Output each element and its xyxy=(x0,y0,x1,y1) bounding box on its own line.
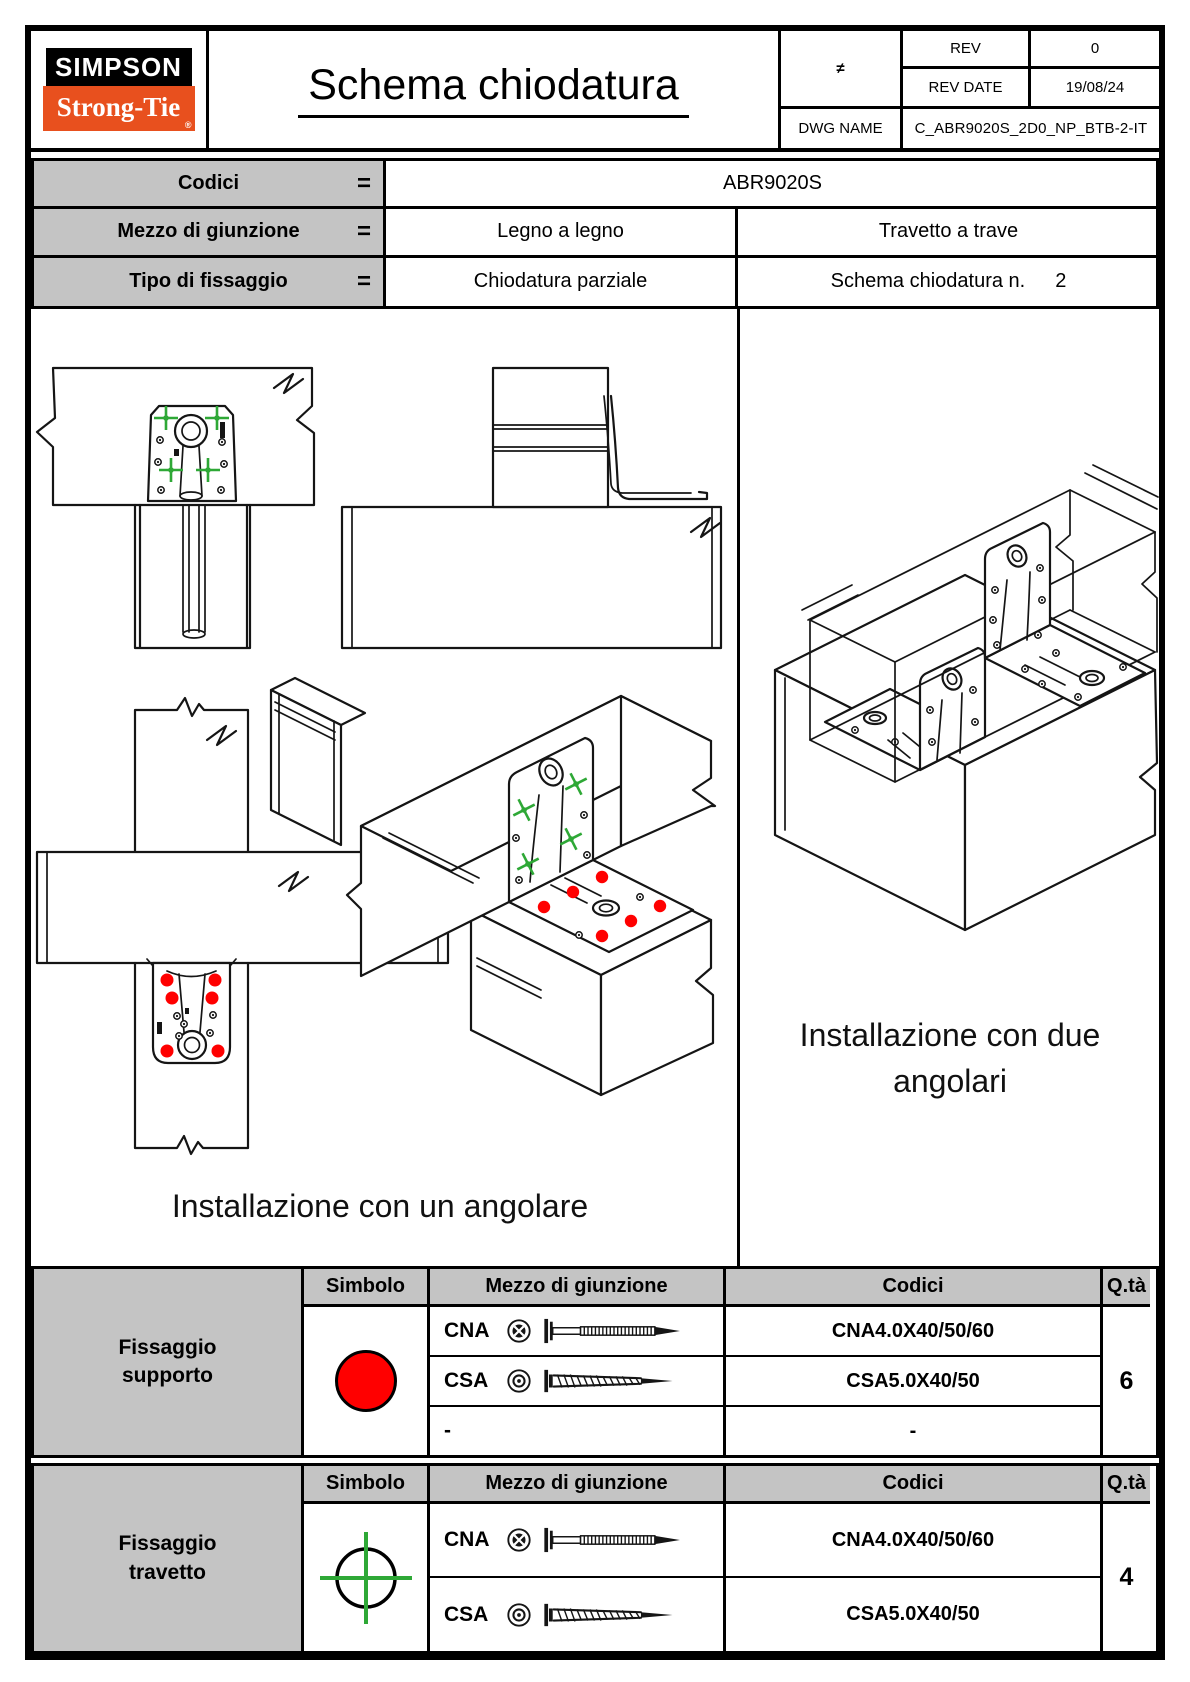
equals-sign: = xyxy=(357,268,371,296)
code-cna: CNA4.0X40/50/60 xyxy=(726,1307,1103,1357)
schema-label: Schema chiodatura n. xyxy=(831,270,1026,293)
dwg-name-value: C_ABR9020S_2D0_NP_BTB-2-IT xyxy=(903,109,1159,148)
revision-block: ≠ REV 0 REV DATE 19/08/24 DWG NAME C_ABR… xyxy=(781,31,1159,148)
fastener-row-csa: CSA xyxy=(430,1357,726,1407)
col-header-simbolo: Simbolo xyxy=(304,1269,430,1307)
info-value-mezzo-left: Legno a legno xyxy=(386,209,738,257)
support-fixing-symbol-red-circle xyxy=(304,1307,430,1455)
col-header-mezzo: Mezzo di giunzione xyxy=(430,1269,726,1307)
rev-date-label: REV DATE xyxy=(903,69,1031,109)
info-value-codici: ABR9020S xyxy=(386,161,1159,209)
cna-head-icon xyxy=(506,1318,532,1344)
brand-logo: SIMPSON Strong-Tie® xyxy=(31,31,209,148)
code-cna: CNA4.0X40/50/60 xyxy=(726,1504,1103,1578)
col-header-qta: Q.tà xyxy=(1103,1269,1150,1307)
info-value-schema: Schema chiodatura n. 2 xyxy=(738,258,1159,306)
support-qty: 6 xyxy=(1103,1307,1150,1455)
rev-label: REV xyxy=(903,31,1031,69)
fastener-row-empty: - xyxy=(430,1407,726,1455)
page-title: Schema chiodatura xyxy=(298,61,689,118)
equals-sign: = xyxy=(357,170,371,198)
sheet-title-cell: Schema chiodatura xyxy=(209,31,781,148)
col-header-qta: Q.tà xyxy=(1103,1466,1150,1504)
csa-head-icon xyxy=(506,1368,532,1394)
col-header-codici: Codici xyxy=(726,1466,1103,1504)
schema-number: 2 xyxy=(1055,270,1066,293)
double-bracket-drawing xyxy=(740,310,1159,1010)
joist-fixing-symbol-green-crosshair xyxy=(304,1504,430,1651)
group-label-supporto: Fissaggio supporto xyxy=(34,1269,304,1455)
right-panel-caption: Installazione con due angolari xyxy=(750,1012,1150,1105)
joist-fixing-table: Fissaggio travetto Simbolo Mezzo di giun… xyxy=(31,1463,1159,1654)
front-view-drawing xyxy=(37,368,314,648)
right-caption-line2: angolari xyxy=(750,1058,1150,1104)
col-header-simbolo: Simbolo xyxy=(304,1466,430,1504)
col-header-mezzo: Mezzo di giunzione xyxy=(430,1466,726,1504)
side-view-drawing xyxy=(342,368,721,648)
joist-qty: 4 xyxy=(1103,1504,1150,1651)
projection-symbol-icon: ≠ xyxy=(781,31,903,109)
left-panel-caption: Installazione con un angolare xyxy=(60,1188,700,1225)
logo-simpson: SIMPSON xyxy=(46,48,192,86)
code-csa: CSA5.0X40/50 xyxy=(726,1357,1103,1407)
logo-strongtie-text: Strong-Tie xyxy=(57,92,181,122)
support-fixing-table: Fissaggio supporto Simbolo Mezzo di giun… xyxy=(31,1266,1159,1458)
connector-screw-icon xyxy=(544,1602,684,1628)
csa-head-icon xyxy=(506,1602,532,1628)
green-crosshair-icon xyxy=(314,1526,418,1630)
code-csa: CSA5.0X40/50 xyxy=(726,1578,1103,1651)
title-block: SIMPSON Strong-Tie® Schema chiodatura ≠ … xyxy=(31,31,1159,152)
col-header-codici: Codici xyxy=(726,1269,1103,1307)
code-empty: - xyxy=(726,1407,1103,1455)
info-label-codici: Codici= xyxy=(34,161,386,209)
logo-strongtie: Strong-Tie® xyxy=(43,86,195,131)
info-label-mezzo: Mezzo di giunzione= xyxy=(34,209,386,257)
equals-sign: = xyxy=(357,218,371,246)
product-info-table: Codici= ABR9020S Mezzo di giunzione= Leg… xyxy=(31,158,1159,309)
info-value-mezzo-right: Travetto a trave xyxy=(738,209,1159,257)
fastener-row-cna: CNA xyxy=(430,1504,726,1578)
fastener-row-csa: CSA xyxy=(430,1578,726,1651)
info-value-fissaggio-left: Chiodatura parziale xyxy=(386,258,738,306)
registered-mark: ® xyxy=(185,120,192,130)
right-caption-line1: Installazione con due xyxy=(750,1012,1150,1058)
dwg-name-label: DWG NAME xyxy=(781,109,903,148)
info-label-fissaggio: Tipo di fissaggio= xyxy=(34,258,386,306)
rev-value: 0 xyxy=(1031,31,1159,69)
rev-date-value: 19/08/24 xyxy=(1031,69,1159,109)
single-bracket-drawings xyxy=(31,310,737,1266)
drawing-sheet: SIMPSON Strong-Tie® Schema chiodatura ≠ … xyxy=(0,0,1190,1682)
group-label-travetto: Fissaggio travetto xyxy=(34,1466,304,1651)
annular-ring-nail-icon xyxy=(544,1527,684,1553)
cna-head-icon xyxy=(506,1527,532,1553)
red-circle-icon xyxy=(335,1350,397,1412)
isometric-two-brackets-drawing xyxy=(775,465,1158,930)
annular-ring-nail-icon xyxy=(544,1318,684,1344)
connector-screw-icon xyxy=(544,1368,684,1394)
fastener-row-cna: CNA xyxy=(430,1307,726,1357)
